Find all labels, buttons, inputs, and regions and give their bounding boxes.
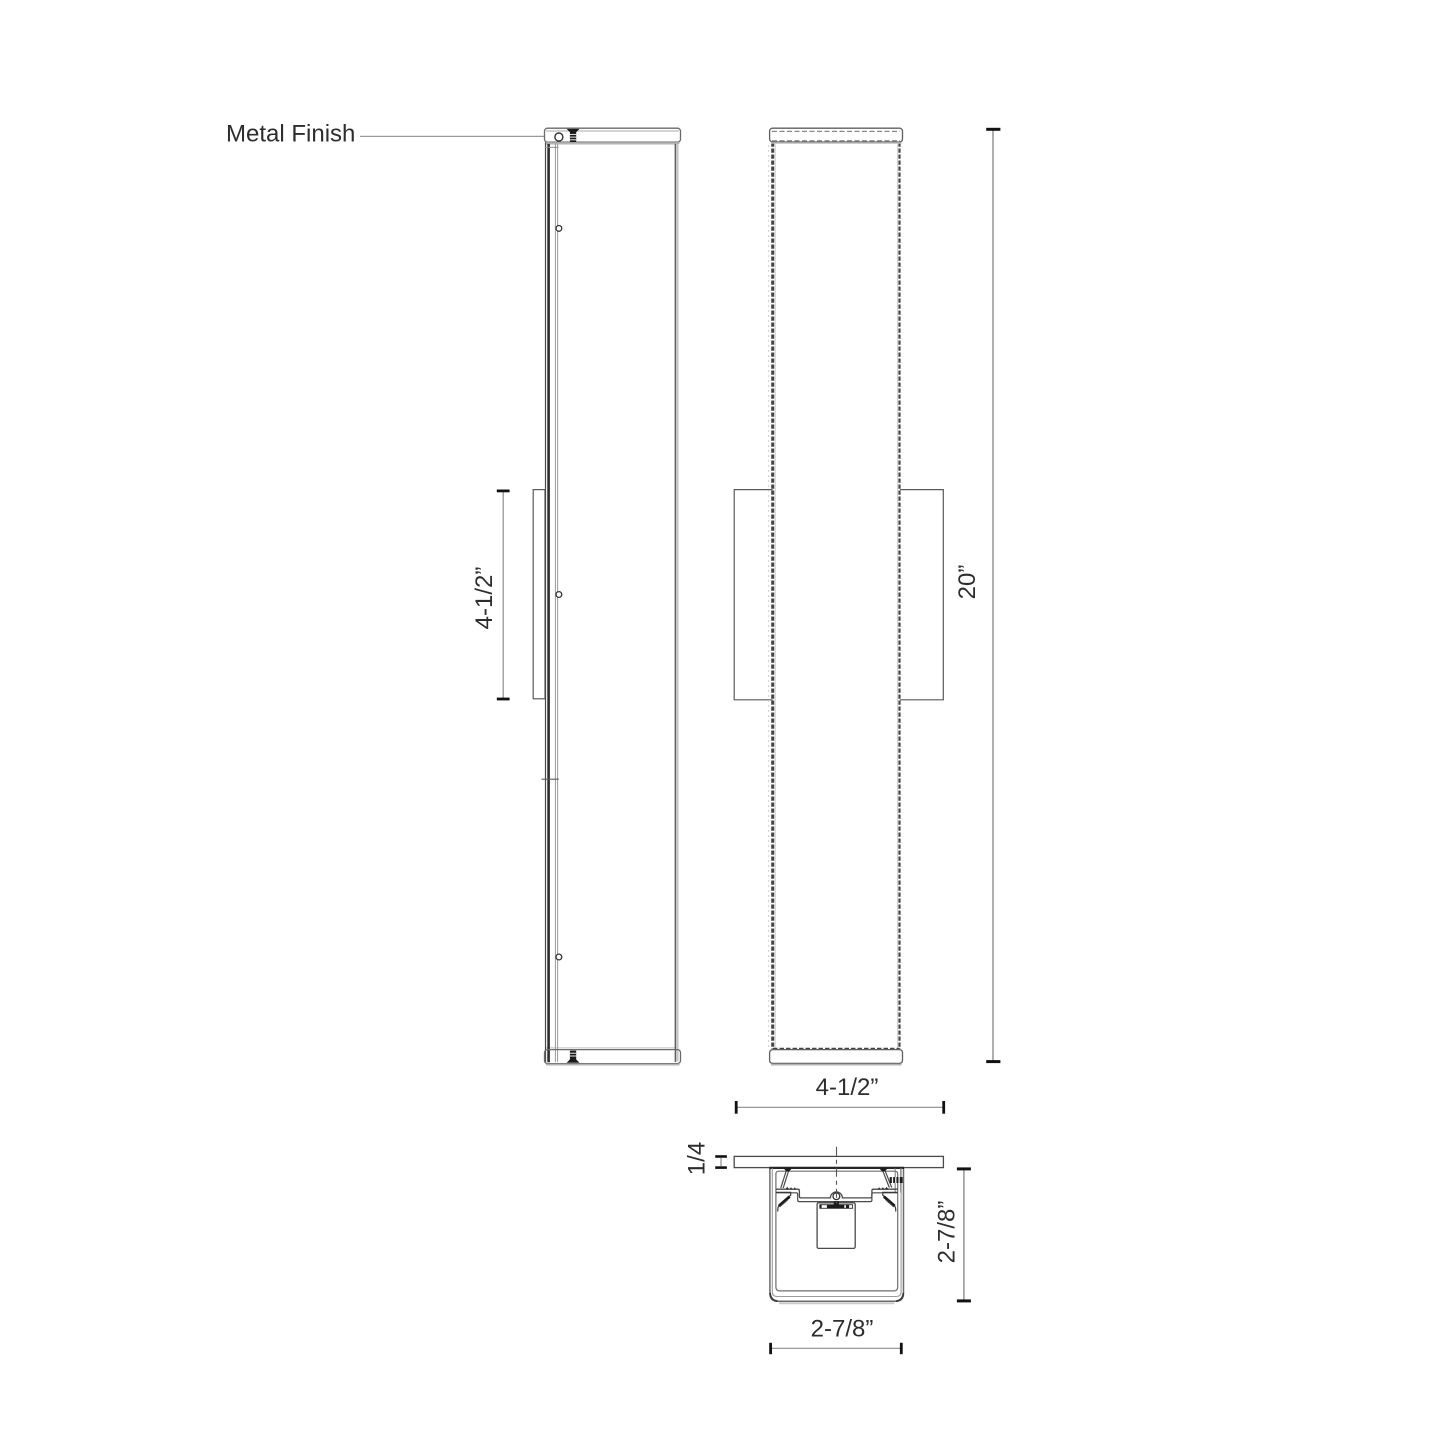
svg-text:2-7/8”: 2-7/8” <box>811 1316 874 1343</box>
svg-text:4-1/2”: 4-1/2” <box>471 567 498 630</box>
svg-text:20”: 20” <box>954 565 981 600</box>
svg-text:Metal Finish: Metal Finish <box>226 121 355 148</box>
svg-text:1/4: 1/4 <box>684 1142 711 1175</box>
svg-text:4-1/2”: 4-1/2” <box>816 1074 879 1101</box>
svg-text:2-7/8”: 2-7/8” <box>934 1201 961 1264</box>
